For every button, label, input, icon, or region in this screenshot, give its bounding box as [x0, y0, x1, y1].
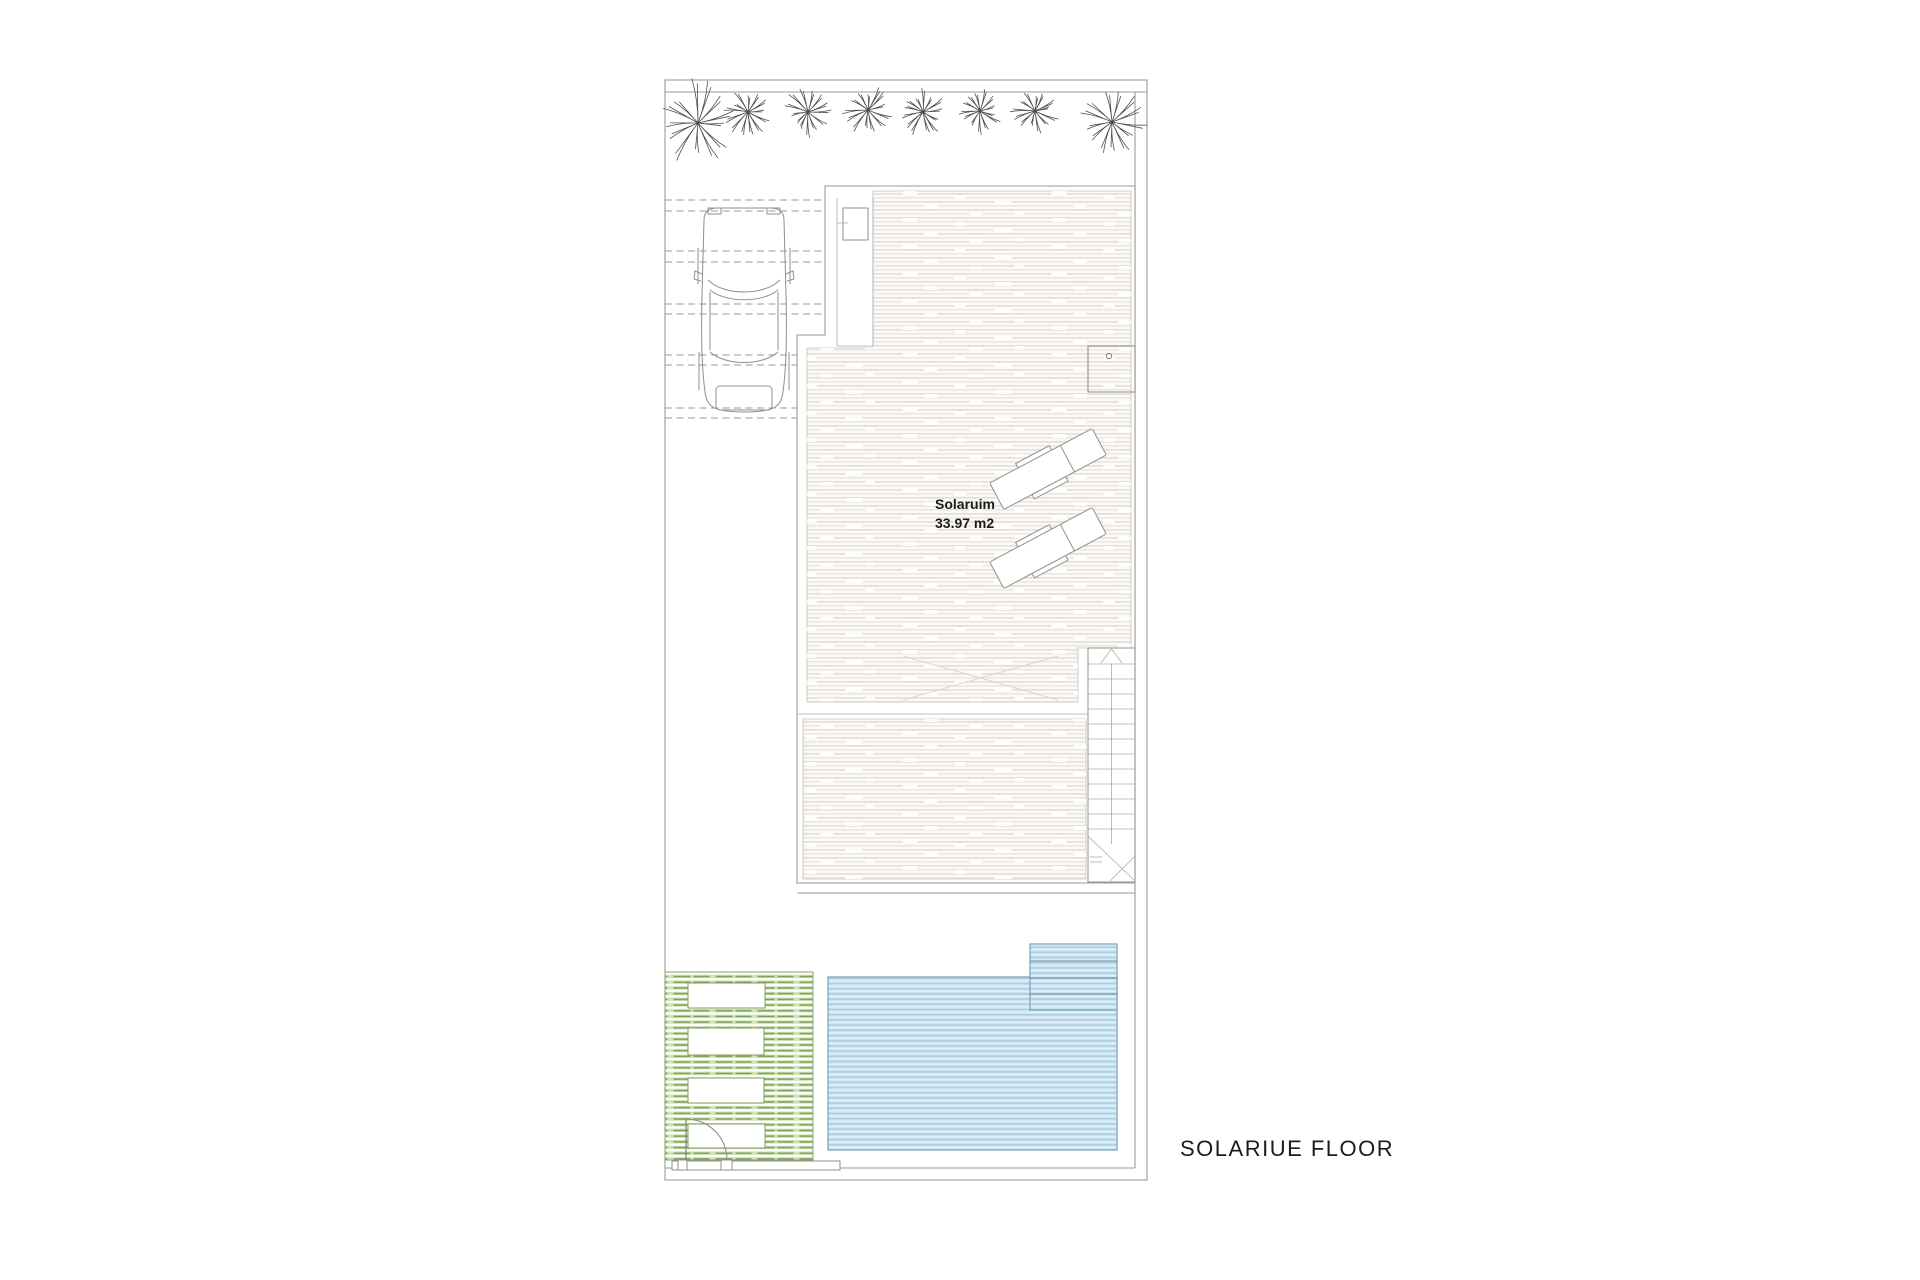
- palm-tree-icon: [903, 88, 942, 134]
- door-post: [721, 1160, 732, 1170]
- solarium-deck-platform: Solaruim 33.97 m2: [797, 186, 1135, 893]
- windshield: [708, 280, 780, 292]
- palm-tree-icon: [663, 79, 732, 161]
- pool-steps: [1030, 944, 1117, 1010]
- pergola-deck: [665, 972, 840, 1170]
- staircase: [1088, 648, 1135, 882]
- floor-title: SOLARIUE FLOOR: [1180, 1136, 1394, 1161]
- floorplan-drawing: Solaruim 33.97 m2: [0, 0, 1920, 1280]
- palm-tree-icon: [1011, 93, 1059, 133]
- car: [694, 208, 794, 412]
- palm-tree-icon: [1081, 92, 1147, 153]
- trunk: [716, 386, 772, 410]
- access-door: [843, 208, 868, 240]
- palm-tree-icon: [959, 90, 1000, 135]
- deck-hatch-lower: [803, 719, 1086, 879]
- swimming-pool: [828, 944, 1117, 1150]
- room-name-text: Solaruim: [935, 496, 995, 512]
- pergola-opening: [688, 983, 765, 1008]
- rear-window: [710, 352, 778, 363]
- palm-trees-row: [663, 79, 1147, 161]
- pergola-opening: [688, 1124, 765, 1148]
- floorplan-canvas: Solaruim 33.97 m2: [0, 0, 1920, 1280]
- palm-tree-icon: [785, 89, 831, 137]
- palm-tree-icon: [842, 88, 892, 131]
- pergola-opening: [688, 1028, 764, 1055]
- door-post: [678, 1160, 687, 1170]
- palm-tree-icon: [724, 93, 769, 135]
- room-area-text: 33.97 m2: [935, 515, 994, 531]
- threshold-step: [672, 1160, 840, 1170]
- pergola-opening: [688, 1078, 764, 1103]
